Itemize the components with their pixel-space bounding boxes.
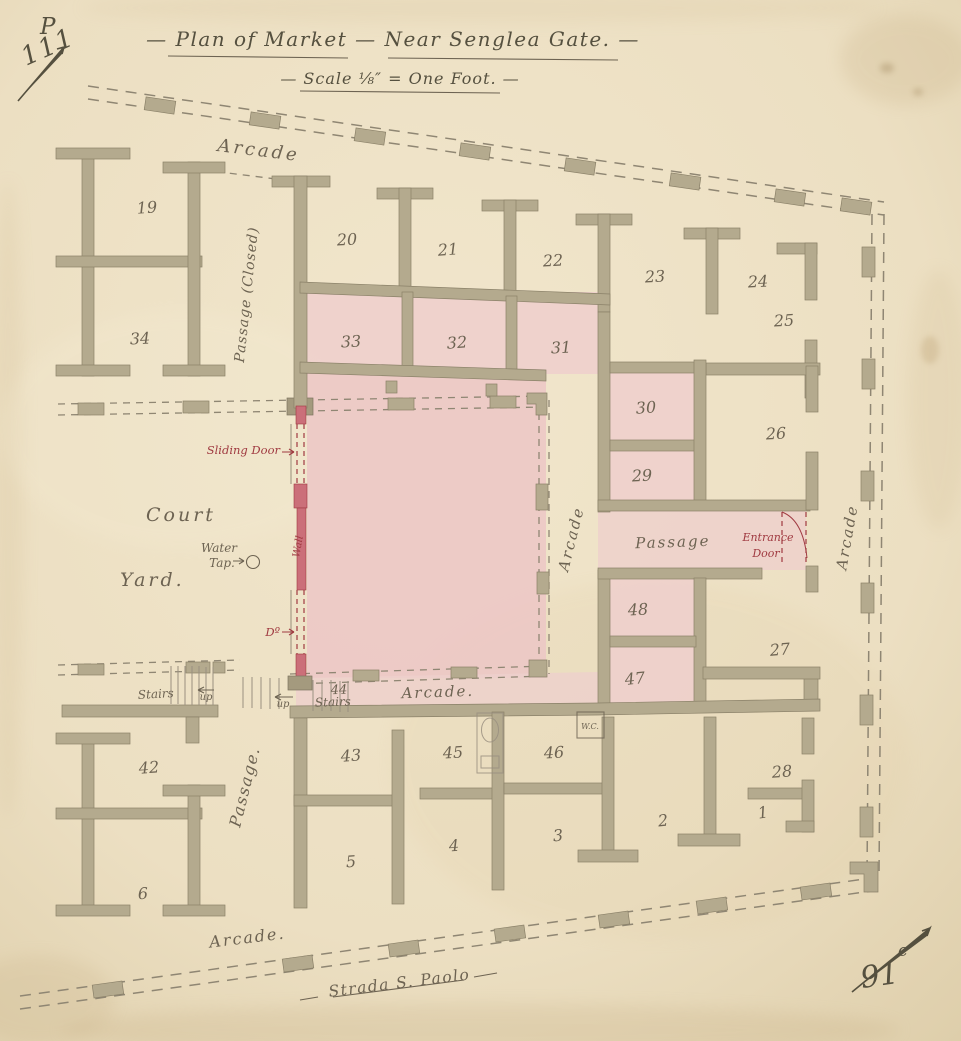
corner-mark-br-letter: c bbox=[898, 941, 908, 961]
room-22: 22 bbox=[541, 250, 563, 270]
plan-sheet: — Plan of Market — Near Senglea Gate. — … bbox=[0, 0, 961, 1041]
room-32: 32 bbox=[446, 332, 468, 352]
room-45: 45 bbox=[441, 742, 463, 762]
room-46: 46 bbox=[542, 742, 564, 762]
room-3: 3 bbox=[552, 826, 564, 846]
label-ditto-door: Dº bbox=[264, 625, 280, 639]
label-court: Court bbox=[146, 504, 216, 526]
room-23: 23 bbox=[643, 266, 665, 286]
room-47: 47 bbox=[623, 668, 647, 689]
corner-mark-tl-letter: P bbox=[39, 14, 56, 40]
room-34: 34 bbox=[129, 328, 150, 348]
label-entrance-door-1: Entrance bbox=[741, 531, 794, 544]
label-water-tap-1: Water bbox=[201, 541, 238, 555]
label-yard: Yard. bbox=[120, 569, 185, 591]
page-title: — Plan of Market — Near Senglea Gate. — bbox=[146, 27, 640, 51]
room-19: 19 bbox=[136, 197, 158, 217]
room-4: 4 bbox=[447, 836, 459, 856]
room-33: 33 bbox=[340, 331, 361, 351]
label-entrance-door-2: Door bbox=[751, 547, 780, 560]
room-26: 26 bbox=[764, 423, 786, 443]
room-29: 29 bbox=[630, 465, 652, 485]
room-24: 24 bbox=[746, 271, 768, 291]
scale-note: — Scale ⅛″ = One Foot. — bbox=[280, 69, 519, 88]
room-28: 28 bbox=[770, 761, 793, 781]
corner-mark-br-number: 91 bbox=[858, 956, 901, 996]
room-27: 27 bbox=[768, 639, 792, 660]
label-arcade-mid: Arcade. bbox=[399, 682, 474, 703]
room-6: 6 bbox=[137, 884, 148, 904]
label-sliding-door: Sliding Door bbox=[207, 443, 282, 457]
room-20: 20 bbox=[335, 229, 357, 249]
label-up-left: up bbox=[200, 692, 213, 703]
room-21: 21 bbox=[436, 239, 459, 259]
room-31: 31 bbox=[550, 337, 571, 357]
label-water-tap-2: Tap. bbox=[209, 556, 235, 570]
room-25: 25 bbox=[772, 310, 794, 330]
room-44: 44 bbox=[329, 683, 347, 699]
room-5: 5 bbox=[345, 852, 356, 872]
room-48: 48 bbox=[626, 599, 648, 619]
label-stairs-left: Stairs bbox=[137, 686, 174, 702]
room-42: 42 bbox=[137, 757, 160, 777]
label-up-market: up bbox=[277, 699, 290, 710]
room-43: 43 bbox=[339, 745, 362, 765]
room-30: 30 bbox=[635, 397, 657, 417]
label-wc: W.C. bbox=[581, 722, 599, 731]
label-passage-center: Passage bbox=[634, 532, 711, 553]
plan-drawing: — Plan of Market — Near Senglea Gate. — … bbox=[0, 0, 961, 1041]
room-2: 2 bbox=[656, 811, 669, 831]
